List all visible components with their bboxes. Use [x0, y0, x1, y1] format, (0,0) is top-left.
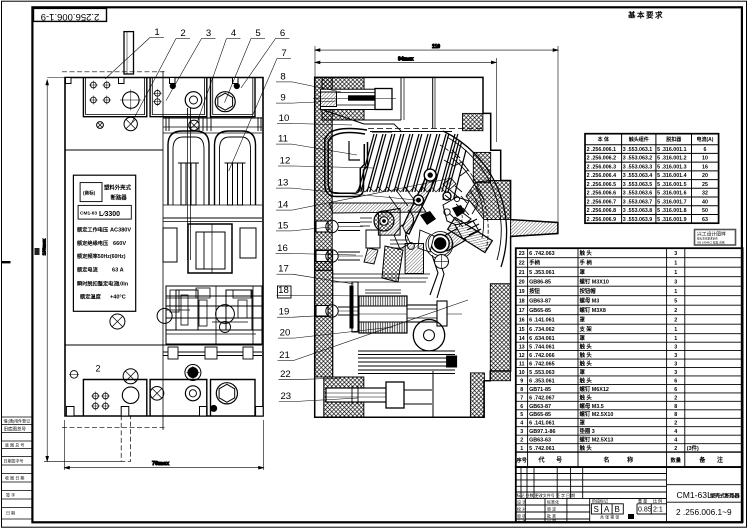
svg-text:21: 21 — [519, 270, 525, 276]
svg-text:16: 16 — [519, 318, 525, 324]
svg-text:标记 处数 更改文件号 签 字 日 期: 标记 处数 更改文件号 签 字 日 期 — [517, 492, 576, 498]
svg-text:GB63-63: GB63-63 — [529, 438, 551, 444]
svg-text:19: 19 — [519, 289, 525, 295]
svg-text:2 .256.006.9: 2 .256.006.9 — [587, 217, 617, 223]
svg-text:罩: 罩 — [580, 334, 586, 342]
svg-text:0.85: 0.85 — [638, 507, 652, 514]
svg-text:22: 22 — [280, 369, 291, 380]
svg-text:110: 110 — [432, 44, 440, 50]
svg-text:1: 1 — [674, 327, 677, 333]
svg-text:5: 5 — [520, 412, 523, 418]
svg-text:40: 40 — [702, 199, 708, 205]
svg-text:CM1-63: CM1-63 — [80, 211, 97, 217]
svg-text:5 .316.001.8: 5 .316.001.8 — [657, 208, 687, 214]
svg-text:6 .742.067: 6 .742.067 — [529, 395, 554, 401]
svg-text:2: 2 — [180, 28, 185, 39]
svg-text:2:1: 2:1 — [653, 507, 663, 514]
svg-text:7: 7 — [520, 395, 523, 401]
svg-text:6 .634.061: 6 .634.061 — [529, 336, 554, 342]
svg-text:瞬时脱扣整定电流: 瞬时脱扣整定电流 — [77, 280, 119, 288]
svg-text:6 .734.062: 6 .734.062 — [529, 327, 554, 333]
svg-text:螺母 M3.5: 螺母 M3.5 — [580, 402, 604, 410]
svg-text:660V: 660V — [113, 241, 126, 247]
svg-text:23: 23 — [280, 391, 291, 402]
svg-text:2 .256.006.4: 2 .256.006.4 — [587, 173, 617, 179]
svg-text:130max: 130max — [42, 238, 47, 255]
svg-text:10: 10 — [279, 113, 290, 124]
svg-text:18: 18 — [519, 299, 525, 305]
svg-text:3: 3 — [674, 251, 677, 257]
svg-text:1: 1 — [674, 289, 677, 295]
svg-text:14: 14 — [278, 200, 289, 211]
svg-text:6 .353.061: 6 .353.061 — [529, 378, 554, 384]
svg-text:签 字: 签 字 — [6, 492, 15, 498]
svg-text:6: 6 — [280, 28, 285, 39]
svg-text:3 .553.063.8: 3 .553.063.8 — [623, 208, 653, 214]
svg-text:6 .141.061: 6 .141.061 — [529, 421, 554, 427]
svg-text:序号: 序号 — [517, 456, 527, 464]
svg-text:GB65-85: GB65-85 — [529, 308, 551, 314]
svg-text:A: A — [604, 505, 610, 514]
svg-text:6: 6 — [674, 378, 677, 384]
svg-text:2 .256.006.1: 2 .256.006.1 — [587, 147, 617, 153]
svg-text:5 .316.001.7: 5 .316.001.7 — [657, 199, 687, 205]
svg-text:20: 20 — [519, 280, 525, 286]
svg-text:按钮: 按钮 — [529, 287, 540, 295]
svg-text:兴工设计图样: 兴工设计图样 — [697, 231, 726, 238]
svg-text:触头组件: 触头组件 — [629, 136, 649, 143]
svg-text:本 体: 本 体 — [597, 136, 610, 143]
svg-text:5 .744.061: 5 .744.061 — [529, 345, 554, 351]
svg-text:按钮帽: 按钮帽 — [580, 287, 597, 295]
svg-text:5 .353.061: 5 .353.061 — [529, 270, 554, 276]
svg-text:5 .316.001.3: 5 .316.001.3 — [657, 164, 687, 170]
svg-text:8: 8 — [674, 404, 677, 410]
svg-text:额定电流: 额定电流 — [77, 266, 99, 274]
svg-text:25: 25 — [702, 182, 708, 188]
svg-text:阶段标记: 阶段标记 — [592, 497, 608, 503]
svg-text:2 .256.006.8: 2 .256.006.8 — [587, 208, 617, 214]
svg-text:3 .553.063.7: 3 .553.063.7 — [623, 199, 653, 205]
svg-text:触 头: 触 头 — [580, 351, 593, 359]
svg-text:18: 18 — [278, 285, 289, 296]
svg-text:2: 2 — [96, 364, 101, 374]
svg-text:校 对: 校 对 — [517, 506, 526, 512]
svg-text:17: 17 — [519, 308, 525, 314]
svg-text:6: 6 — [704, 147, 707, 153]
svg-text:电流(A): 电流(A) — [697, 136, 714, 143]
svg-text:2.256.006.1-9: 2.256.006.1-9 — [41, 11, 100, 22]
svg-text:2 .256.006.1~9: 2 .256.006.1~9 — [676, 507, 732, 517]
svg-text:9: 9 — [280, 93, 285, 104]
svg-text:15: 15 — [519, 327, 525, 333]
svg-text:支 架: 支 架 — [579, 325, 593, 333]
svg-text:3: 3 — [206, 28, 211, 39]
svg-text:额定频率50Hz(60Hz): 额定频率50Hz(60Hz) — [77, 252, 126, 260]
svg-text:3 .553.063.5: 3 .553.063.5 — [623, 182, 653, 188]
svg-text:14: 14 — [519, 336, 525, 342]
svg-text:代 号: 代 号 — [537, 456, 567, 464]
svg-text:手柄: 手柄 — [529, 259, 540, 267]
svg-text:5 .316.001.6: 5 .316.001.6 — [657, 191, 687, 197]
svg-text:日 期: 日 期 — [6, 510, 15, 516]
svg-text:触 头: 触 头 — [580, 249, 593, 257]
svg-text:2 .256.006.6: 2 .256.006.6 — [587, 191, 617, 197]
svg-text:63: 63 — [702, 217, 708, 223]
svg-text:4: 4 — [520, 421, 523, 427]
svg-text:50: 50 — [702, 208, 708, 214]
svg-text:23: 23 — [519, 251, 525, 257]
svg-text:3 .553.063.3: 3 .553.063.3 — [623, 164, 653, 170]
svg-text:6: 6 — [520, 404, 523, 410]
svg-text:罩: 罩 — [580, 419, 586, 427]
svg-text:日期签字号: 日期签字号 — [4, 458, 24, 464]
svg-text:6 .141.061: 6 .141.061 — [529, 318, 554, 324]
svg-text:额定温度: 额定温度 — [80, 293, 102, 301]
svg-text:1: 1 — [674, 336, 677, 342]
svg-text:AC380V: AC380V — [110, 228, 131, 234]
svg-text:2 .256.006.7: 2 .256.006.7 — [587, 199, 617, 205]
svg-text:CM1-63L: CM1-63L — [677, 490, 713, 500]
svg-text:2 .256.006.5: 2 .256.006.5 — [587, 182, 617, 188]
svg-text:+40°C: +40°C — [110, 295, 126, 301]
svg-text:(3件): (3件) — [687, 444, 699, 452]
svg-text:2 .256.006.3: 2 .256.006.3 — [587, 164, 617, 170]
svg-text:5 .742.061: 5 .742.061 — [529, 446, 554, 452]
svg-text:20: 20 — [702, 173, 708, 179]
svg-text:2: 2 — [674, 318, 677, 324]
svg-text:16: 16 — [277, 243, 288, 254]
svg-text:17: 17 — [278, 264, 289, 275]
svg-text:触 头: 触 头 — [580, 444, 593, 452]
svg-text:塑料外壳式: 塑料外壳式 — [104, 184, 132, 192]
svg-text:22: 22 — [519, 261, 525, 267]
svg-text:S: S — [594, 505, 599, 514]
svg-text:共 张 第 张: 共 张 第 张 — [600, 514, 619, 520]
svg-text:断路器: 断路器 — [111, 194, 128, 202]
svg-text:日 期: 日 期 — [547, 517, 556, 523]
svg-text:旧底图总号: 旧底图总号 — [4, 426, 27, 433]
svg-text:借(通)用件登记: 借(通)用件登记 — [4, 418, 31, 424]
svg-text:触 头: 触 头 — [580, 393, 593, 401]
svg-text:10: 10 — [519, 370, 525, 376]
svg-text:3 .553.063.2: 3 .553.063.2 — [623, 156, 653, 162]
svg-text:10In: 10In — [117, 282, 129, 288]
svg-text:4: 4 — [231, 28, 237, 39]
svg-text:3: 3 — [674, 362, 677, 368]
svg-text:2: 2 — [674, 421, 677, 427]
svg-text:设 计: 设 计 — [517, 499, 526, 505]
svg-text:工 艺: 工 艺 — [517, 518, 526, 523]
svg-text:1: 1 — [674, 261, 677, 267]
svg-text:1: 1 — [674, 270, 677, 276]
svg-text:螺钉 M3X10: 螺钉 M3X10 — [580, 278, 609, 286]
svg-text:11: 11 — [519, 362, 525, 368]
svg-text:3: 3 — [674, 370, 677, 376]
svg-text:3 .553.063.4: 3 .553.063.4 — [623, 173, 653, 179]
svg-text:10: 10 — [702, 156, 708, 162]
svg-text:2 .256.006.2: 2 .256.006.2 — [587, 156, 617, 162]
svg-text:5 .316.001.2: 5 .316.001.2 — [657, 156, 687, 162]
svg-text:手 柄: 手 柄 — [580, 259, 593, 267]
svg-text:1: 1 — [154, 27, 159, 38]
svg-text:5: 5 — [674, 299, 677, 305]
svg-text:GB 14048.2 标准 合格: GB 14048.2 标准 合格 — [697, 241, 725, 245]
svg-text:9: 9 — [520, 378, 523, 384]
svg-text:15: 15 — [278, 220, 289, 231]
svg-text:基本要求: 基本要求 — [627, 10, 664, 20]
svg-text:5 .316.001.5: 5 .316.001.5 — [657, 182, 687, 188]
svg-text:GB65-85: GB65-85 — [529, 412, 551, 418]
svg-text:2: 2 — [520, 438, 523, 444]
svg-text:2: 2 — [674, 308, 677, 314]
svg-text:13: 13 — [278, 178, 289, 189]
svg-text:6 .742.066: 6 .742.066 — [529, 353, 554, 359]
svg-text:5: 5 — [255, 28, 260, 39]
svg-text:触 头: 触 头 — [580, 343, 593, 351]
svg-text:额定工作电压: 额定工作电压 — [77, 226, 109, 234]
svg-text:4: 4 — [674, 438, 677, 444]
svg-text:GB97.1-86: GB97.1-86 — [529, 429, 555, 435]
svg-text:20: 20 — [280, 328, 291, 339]
svg-text:6 .742.065: 6 .742.065 — [529, 362, 554, 368]
svg-text:GB63-87: GB63-87 — [529, 299, 551, 305]
svg-text:备 注: 备 注 — [698, 456, 728, 464]
svg-text:19: 19 — [279, 307, 290, 318]
svg-text:5 .316.001.4: 5 .316.001.4 — [657, 173, 687, 179]
svg-text:2: 2 — [674, 446, 677, 452]
svg-text:标准化: 标准化 — [547, 499, 559, 505]
svg-text:数量: 数量 — [671, 456, 682, 464]
svg-text:螺钉 M2.5X13: 螺钉 M2.5X13 — [580, 436, 614, 444]
svg-text:6: 6 — [674, 387, 677, 393]
svg-text:3: 3 — [674, 353, 677, 359]
svg-text:罩: 罩 — [580, 316, 586, 324]
svg-text:6 .742.063: 6 .742.063 — [529, 251, 554, 257]
svg-text:罩: 罩 — [580, 268, 586, 276]
svg-text:螺钉 M3X8: 螺钉 M3X8 — [580, 306, 606, 314]
svg-text:3: 3 — [520, 429, 523, 435]
svg-text:审 定: 审 定 — [547, 506, 556, 512]
svg-text:GB86-85: GB86-85 — [529, 280, 551, 286]
svg-text:3 .553.063.9: 3 .553.063.9 — [623, 217, 653, 223]
svg-text:3 .553.063.1: 3 .553.063.1 — [623, 147, 653, 153]
svg-text:L∕3300: L∕3300 — [99, 211, 120, 218]
svg-text:GB71-85: GB71-85 — [529, 387, 551, 393]
svg-text:5 .316.001.9: 5 .316.001.9 — [657, 217, 687, 223]
svg-text:底 图 总 号: 底 图 总 号 — [5, 442, 24, 448]
svg-text:比 例: 比 例 — [653, 497, 662, 503]
svg-text:8: 8 — [280, 71, 285, 82]
svg-text:重 量: 重 量 — [638, 497, 647, 503]
svg-text:12: 12 — [280, 156, 291, 167]
svg-text:1: 1 — [520, 446, 523, 452]
svg-text:3: 3 — [674, 280, 677, 286]
svg-text:(商标): (商标) — [83, 190, 96, 197]
svg-text:触 头: 触 头 — [580, 376, 593, 384]
svg-text:13: 13 — [519, 345, 525, 351]
svg-text:3 .553.063.6: 3 .553.063.6 — [623, 191, 653, 197]
svg-text:76max: 76max — [152, 461, 170, 467]
svg-text:名 称: 名 称 — [603, 456, 641, 464]
svg-text:32: 32 — [702, 191, 708, 197]
svg-text:7: 7 — [281, 48, 286, 59]
svg-text:垫圈 3: 垫圈 3 — [580, 427, 595, 435]
svg-text:罩: 罩 — [580, 368, 586, 376]
svg-text:塑壳式断路器: 塑壳式断路器 — [710, 492, 740, 500]
svg-text:B: B — [615, 505, 620, 514]
svg-text:4: 4 — [674, 429, 677, 435]
svg-text:11: 11 — [278, 134, 288, 145]
svg-text:8: 8 — [520, 387, 523, 393]
svg-text:触 头: 触 头 — [580, 360, 593, 368]
svg-text:63 A: 63 A — [112, 268, 124, 274]
svg-text:脱扣器: 脱扣器 — [665, 136, 682, 143]
svg-text:94max: 94max — [398, 56, 414, 62]
svg-text:螺钉 M6X12: 螺钉 M6X12 — [580, 385, 609, 393]
svg-text:12: 12 — [519, 353, 525, 359]
svg-text:3: 3 — [674, 345, 677, 351]
svg-text:21: 21 — [279, 350, 290, 361]
svg-text:16: 16 — [702, 164, 708, 170]
svg-text:5 .316.001.1: 5 .316.001.1 — [657, 147, 687, 153]
svg-text:8: 8 — [674, 412, 677, 418]
svg-text:5 .553.063: 5 .553.063 — [529, 370, 554, 376]
svg-text:2: 2 — [674, 395, 677, 401]
svg-text:GB63-87: GB63-87 — [529, 404, 551, 410]
svg-text:收 图 日 期: 收 图 日 期 — [5, 475, 24, 481]
svg-text:螺钉 M2.5X10: 螺钉 M2.5X10 — [580, 410, 614, 418]
svg-text:额定绝缘电压: 额定绝缘电压 — [77, 239, 109, 247]
svg-text:螺母 M3: 螺母 M3 — [580, 297, 600, 305]
